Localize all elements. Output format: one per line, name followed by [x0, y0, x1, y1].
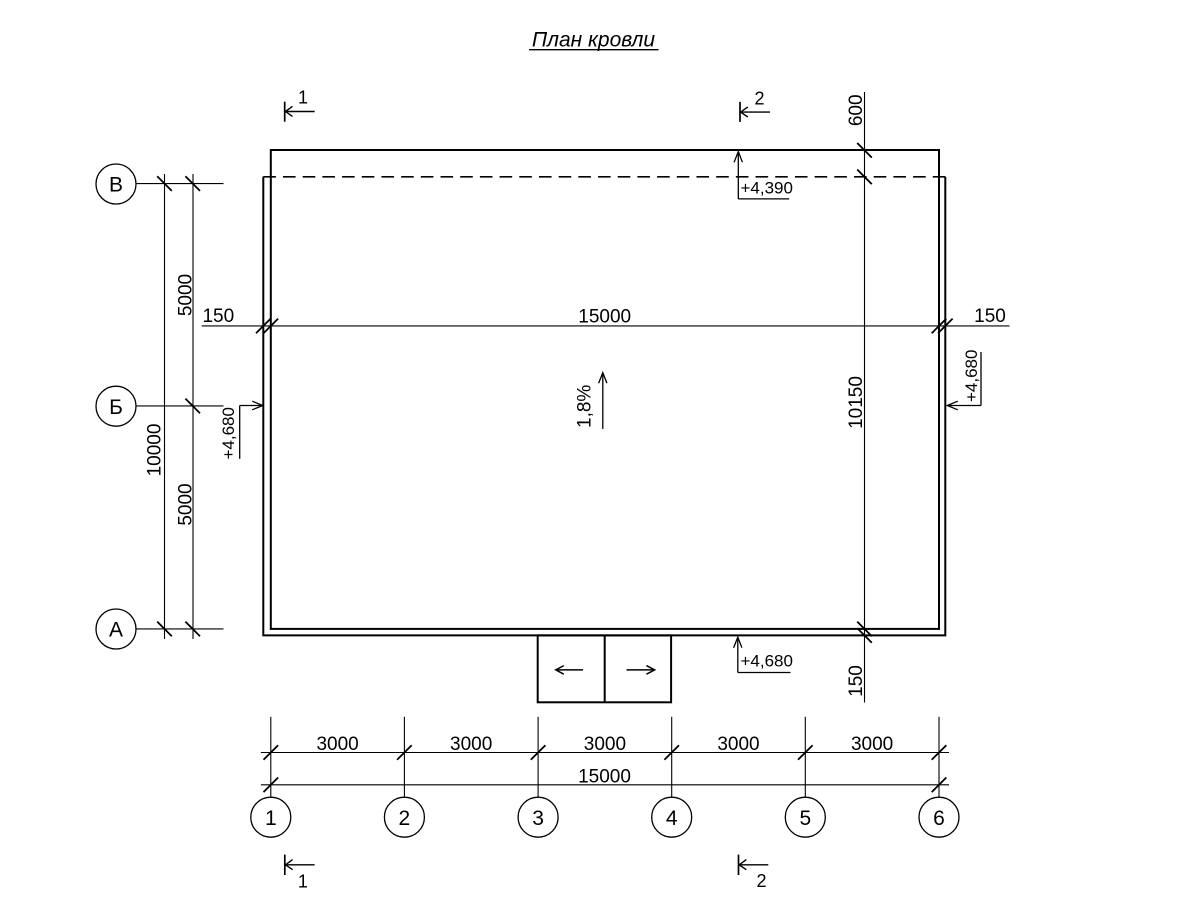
svg-text:2: 2 — [754, 89, 764, 109]
svg-text:150: 150 — [202, 306, 234, 327]
svg-text:2: 2 — [756, 871, 766, 891]
svg-text:4: 4 — [666, 807, 678, 830]
svg-text:10000: 10000 — [145, 424, 166, 477]
svg-text:2: 2 — [399, 807, 411, 830]
svg-text:1: 1 — [298, 872, 308, 892]
svg-text:15000: 15000 — [578, 767, 631, 788]
svg-text:15000: 15000 — [578, 307, 631, 328]
svg-text:+4,680: +4,680 — [741, 652, 793, 671]
svg-text:3000: 3000 — [717, 734, 759, 755]
svg-text:3000: 3000 — [450, 734, 492, 755]
svg-text:3: 3 — [532, 807, 544, 830]
svg-text:3000: 3000 — [316, 734, 358, 755]
svg-text:1: 1 — [298, 88, 308, 108]
svg-text:150: 150 — [846, 665, 867, 697]
svg-text:1,8%: 1,8% — [575, 385, 596, 428]
svg-text:3000: 3000 — [584, 734, 626, 755]
svg-text:Б: Б — [109, 396, 123, 419]
svg-text:5000: 5000 — [176, 483, 197, 525]
svg-text:600: 600 — [846, 94, 867, 126]
svg-text:1: 1 — [265, 807, 277, 830]
svg-text:5000: 5000 — [176, 274, 197, 316]
svg-text:5: 5 — [799, 807, 811, 830]
svg-text:+4,680: +4,680 — [962, 350, 981, 402]
svg-text:План кровли: План кровли — [532, 29, 656, 52]
svg-text:150: 150 — [974, 306, 1006, 327]
svg-text:3000: 3000 — [851, 734, 893, 755]
svg-text:+4,390: +4,390 — [741, 179, 793, 198]
svg-text:10150: 10150 — [846, 376, 867, 429]
svg-text:6: 6 — [933, 807, 945, 830]
svg-text:А: А — [109, 619, 123, 642]
svg-text:В: В — [109, 174, 123, 197]
svg-text:+4,680: +4,680 — [219, 407, 238, 459]
